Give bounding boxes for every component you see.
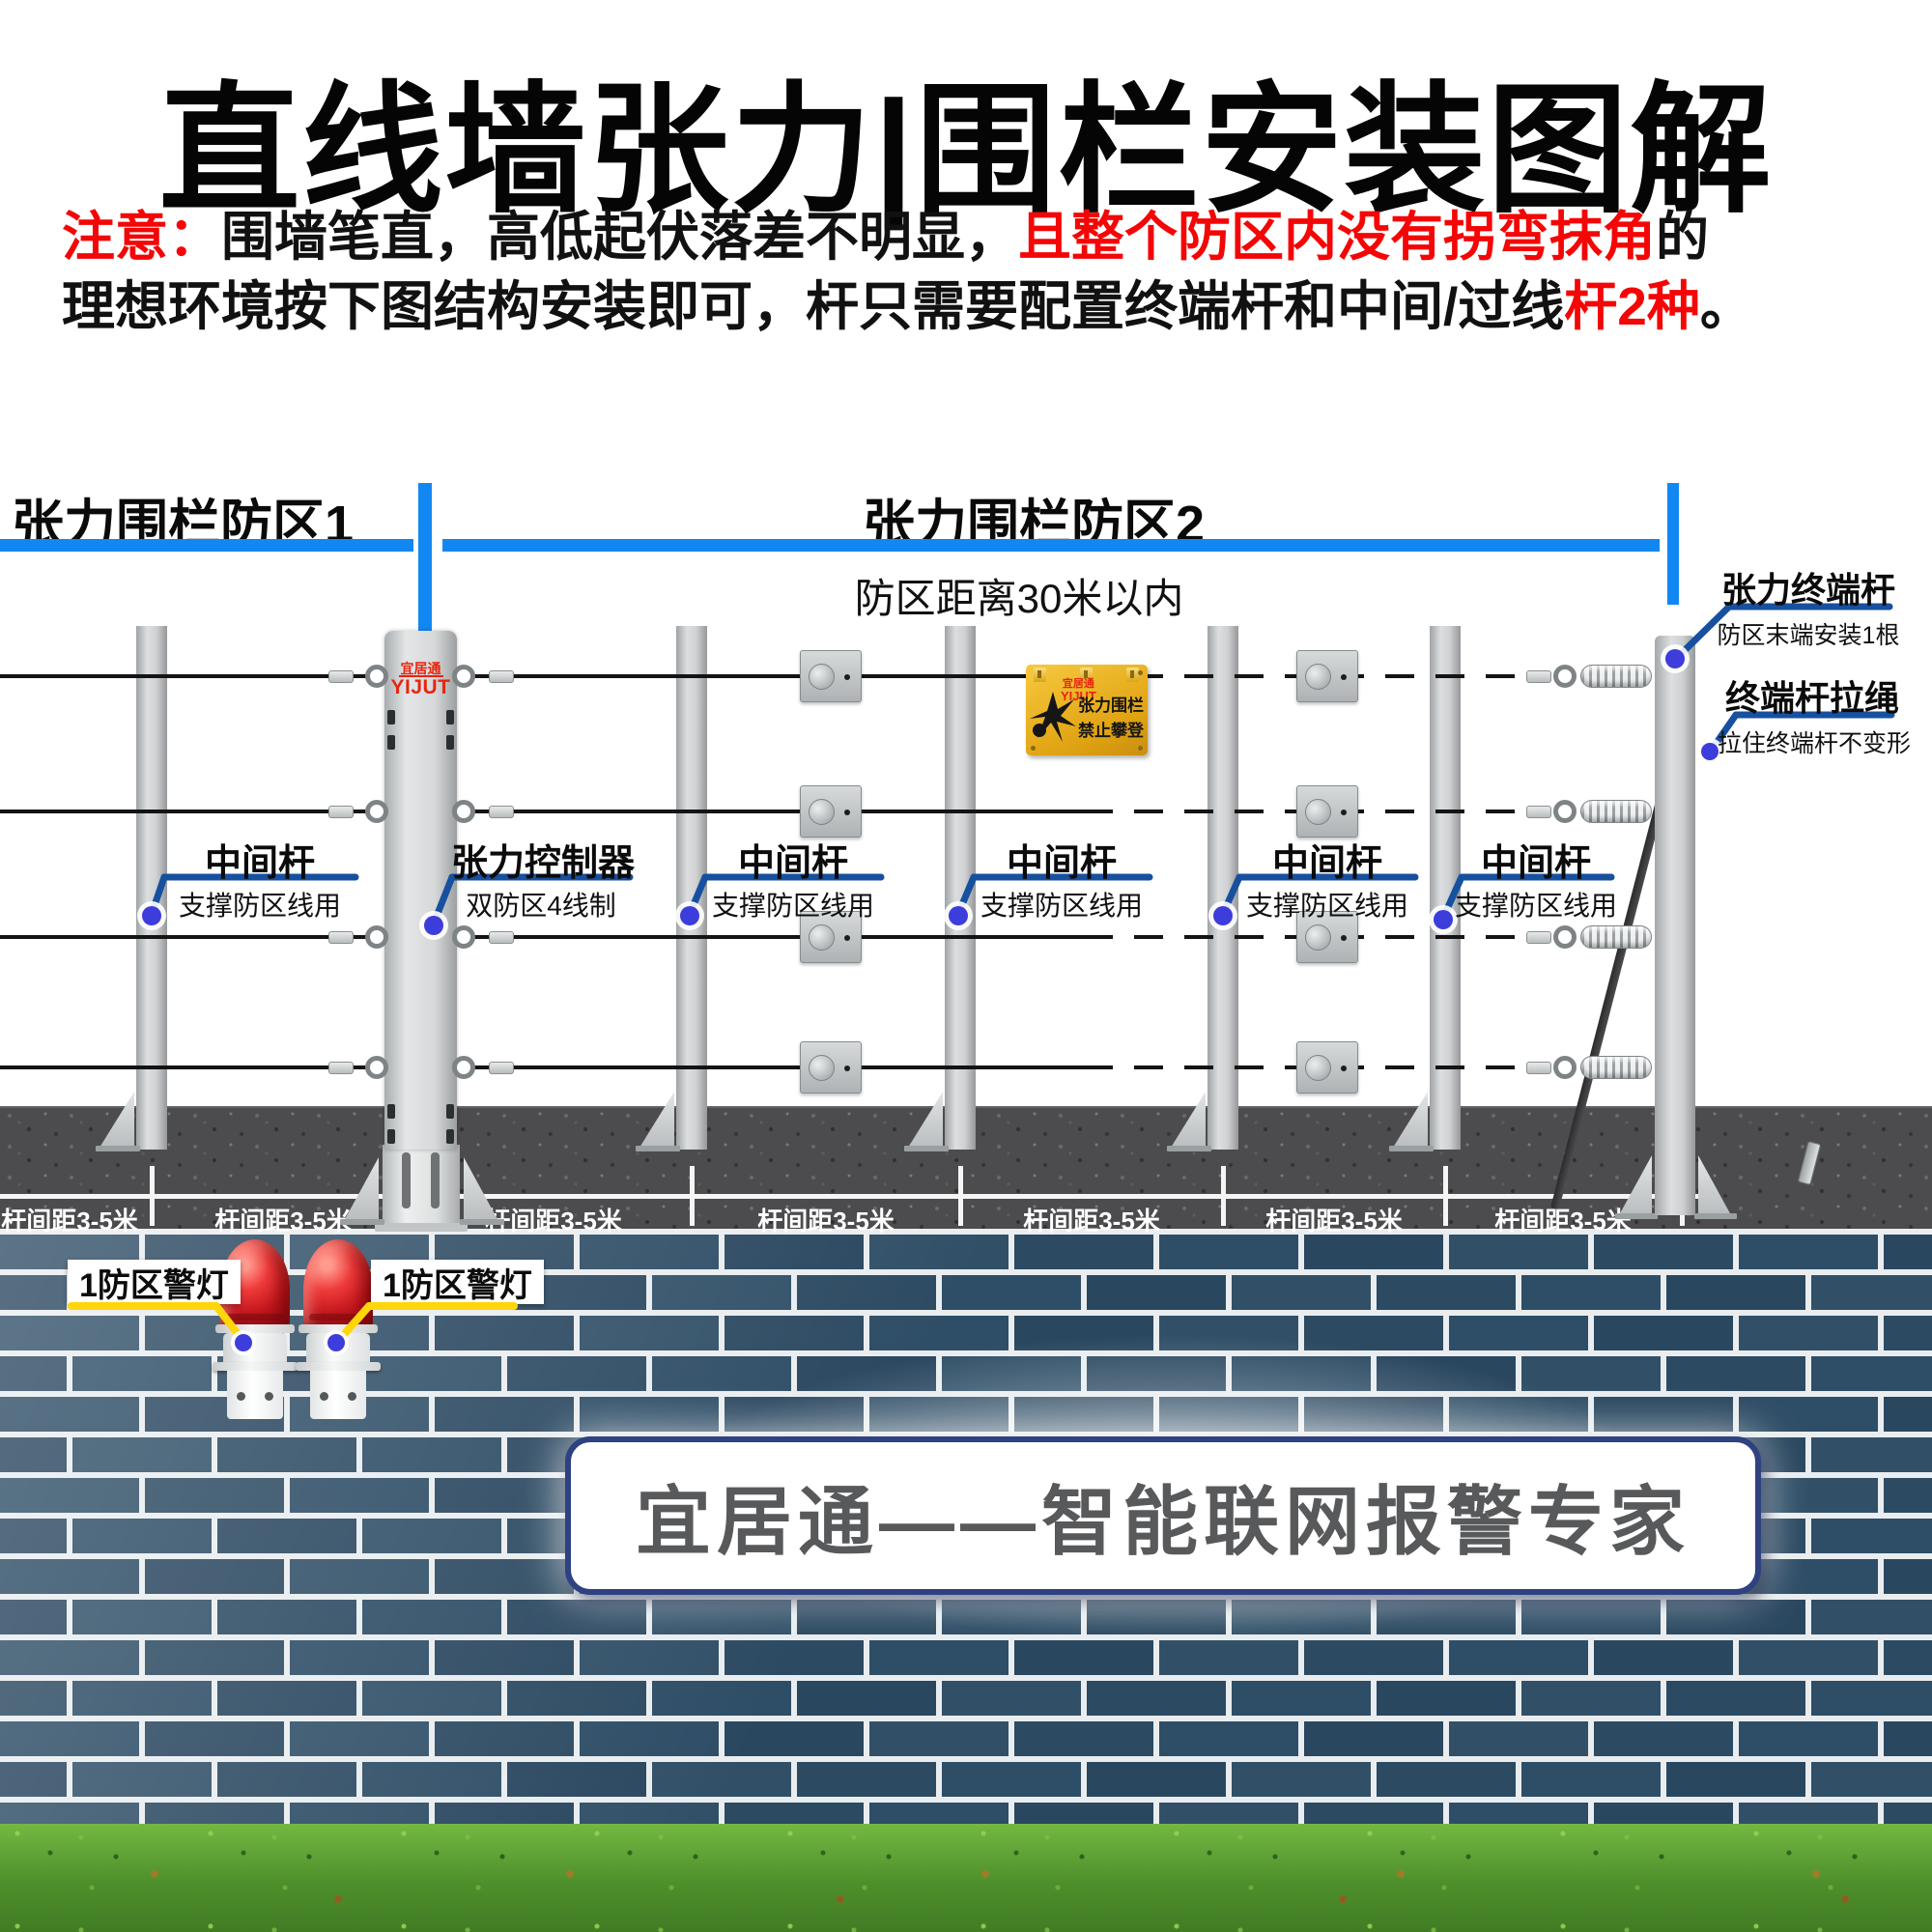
note-line-2: 理想环境按下图结构安装即可，杆只需要配置终端杆和中间/过线杆2种。	[62, 263, 1907, 340]
wire-ferrule	[328, 670, 354, 683]
callout-sub-controller: 双防区4线制	[466, 885, 616, 923]
middle-pole-1	[136, 626, 167, 1150]
wire-tension-plate	[800, 785, 862, 838]
infographic-page: 直线墙张力|围栏安装图解 注意：围墙笔直，高低起伏落差不明显，且整个防区内没有拐…	[0, 0, 1932, 1932]
measure-tick	[1443, 1166, 1448, 1226]
tension-spring	[1580, 800, 1652, 823]
wire-ferrule	[489, 806, 514, 818]
pole-anchor-plate	[96, 1146, 140, 1151]
callout-sub-middle-pole-3: 支撑防区线用	[980, 885, 1143, 923]
wire-ring	[365, 665, 388, 688]
warning-sign: 宜居通 YIJUT 张力围栏 禁止攀登	[1026, 665, 1148, 755]
wire-ferrule	[1526, 670, 1551, 683]
spring-hook-ring	[1553, 925, 1577, 949]
controller-logo-cn: 宜居通	[399, 662, 443, 677]
sign-text-line1: 张力围栏	[1076, 692, 1146, 716]
note-prefix: 注意：	[62, 207, 221, 267]
grass-strip	[0, 1824, 1932, 1932]
fence-wire-4-solid	[0, 1065, 1084, 1069]
spring-hook-ring	[1553, 1056, 1577, 1079]
pole-spacing-label: 杆间距3-5米	[485, 1202, 622, 1237]
pole-spacing-label: 杆间距3-5米	[757, 1202, 895, 1237]
tension-controller-pole: 宜居通 YIJUT	[384, 631, 457, 1150]
pole-anchor-plate	[1694, 1213, 1737, 1219]
callout-title-guy-rope: 终端杆拉绳	[1725, 670, 1899, 721]
pole-spacing-label: 杆间距3-5米	[214, 1202, 352, 1237]
middle-pole-4	[1207, 626, 1238, 1150]
brick-row	[0, 1756, 1932, 1797]
controller-bolt	[387, 1104, 395, 1119]
callout-sub-middle-pole-4: 支撑防区线用	[1246, 885, 1408, 923]
callout-sub-middle-pole-2: 支撑防区线用	[712, 885, 874, 923]
pole-spacing-label: 杆间距3-5米	[1265, 1202, 1403, 1237]
measure-tick	[1221, 1166, 1226, 1226]
note-l1-red: 且整个防区内没有拐弯抹角	[1018, 207, 1656, 267]
zone-2-bar	[442, 539, 1660, 552]
zone-divider-left	[418, 483, 432, 647]
wire-ferrule	[489, 670, 514, 683]
measure-tick	[958, 1166, 963, 1226]
zone-1-bar	[0, 539, 413, 552]
callout-title-middle-pole-4: 中间杆	[1272, 833, 1382, 886]
pole-anchor-plate	[904, 1146, 949, 1151]
wire-ferrule	[328, 1062, 354, 1074]
callout-sub-middle-pole-5: 支撑防区线用	[1455, 885, 1617, 923]
brick-row	[0, 1634, 1932, 1675]
wire-tension-plate	[1296, 1041, 1358, 1094]
brick-row	[0, 1594, 1932, 1634]
sign-hanger-tab	[1034, 668, 1046, 682]
callout-sub-terminal-pole: 防区末端安装1根	[1718, 616, 1900, 651]
controller-brand-logo: 宜居通 YIJUT	[384, 662, 457, 698]
wire-ring	[452, 665, 475, 688]
controller-bolt	[446, 735, 454, 750]
brick-row	[0, 1675, 1932, 1716]
spring-hook-ring	[1553, 665, 1577, 688]
wire-ring	[452, 800, 475, 823]
wire-tension-plate	[800, 1041, 862, 1094]
controller-logo-en: YIJUT	[390, 677, 450, 697]
wire-ring	[452, 925, 475, 949]
brick-row	[0, 1716, 1932, 1756]
callout-sub-middle-pole-1: 支撑防区线用	[179, 885, 341, 923]
pole-anchor-plate	[636, 1146, 680, 1151]
wire-ring	[452, 1056, 475, 1079]
pole-anchor-plate	[340, 1219, 384, 1225]
tension-spring	[1580, 925, 1652, 949]
wire-ferrule	[328, 806, 354, 818]
no-climbing-icon	[1028, 690, 1078, 744]
callout-title-middle-pole-2: 中间杆	[738, 833, 848, 886]
wire-tension-plate	[1296, 785, 1358, 838]
banner-text: 宜居通——智能联网报警专家	[636, 1462, 1690, 1570]
terminal-pole	[1655, 636, 1695, 1215]
callout-title-middle-pole-3: 中间杆	[1007, 833, 1117, 886]
spring-hook-ring	[1553, 800, 1577, 823]
middle-pole-2	[676, 626, 707, 1150]
callout-title-terminal-pole: 张力终端杆	[1721, 562, 1895, 612]
pole-anchor-plate	[1389, 1146, 1434, 1151]
controller-bolt	[387, 1129, 395, 1144]
callout-title-middle-pole-1: 中间杆	[205, 833, 315, 886]
fence-wire-1-solid	[0, 674, 1084, 678]
note-l2-black2: 。	[1700, 276, 1753, 336]
lamp-label-2: 1防区警灯	[371, 1260, 544, 1304]
middle-pole-3	[945, 626, 976, 1150]
wire-ring	[365, 925, 388, 949]
controller-bolt	[446, 710, 454, 724]
fence-wire-3-solid	[0, 935, 1084, 939]
wire-tension-plate	[800, 650, 862, 702]
callout-sub-guy-rope: 拉住终端杆不变形	[1718, 724, 1911, 759]
brick-row	[0, 1797, 1932, 1824]
controller-bolt	[387, 735, 395, 750]
wire-tension-plate	[1296, 650, 1358, 702]
measure-tick	[150, 1166, 155, 1226]
callout-title-controller: 张力控制器	[451, 833, 635, 886]
sign-hanger-tab	[1126, 668, 1139, 682]
controller-bolt	[387, 710, 395, 724]
brand-banner: 宜居通——智能联网报警专家	[565, 1436, 1761, 1595]
note-l2-black1: 理想环境按下图结构安装即可，杆只需要配置终端杆和中间/过线	[62, 276, 1564, 336]
pole-spacing-label: 杆间距3-5米	[1494, 1202, 1632, 1237]
wire-ring	[365, 1056, 388, 1079]
wire-ferrule	[1526, 1062, 1551, 1074]
wire-ferrule	[328, 931, 354, 944]
wire-ferrule	[1526, 931, 1551, 944]
pole-anchor-plate	[1615, 1213, 1658, 1219]
controller-bolt	[446, 1104, 454, 1119]
note-l2-red: 杆2种	[1564, 276, 1700, 336]
zone-distance-label: 防区距离30米以内	[855, 566, 1184, 625]
zone-divider-right	[1667, 483, 1679, 605]
tension-spring	[1580, 1056, 1652, 1079]
tension-spring	[1580, 665, 1652, 688]
note-line-1: 注意：围墙笔直，高低起伏落差不明显，且整个防区内没有拐弯抹角的	[62, 193, 1907, 270]
pole-anchor-plate	[1167, 1146, 1211, 1151]
callout-title-middle-pole-5: 中间杆	[1481, 833, 1591, 886]
lamp-label-1: 1防区警灯	[68, 1260, 241, 1304]
wire-ring	[365, 800, 388, 823]
sign-text-line2: 禁止攀登	[1076, 717, 1146, 741]
measure-tick	[690, 1166, 695, 1226]
pole-spacing-label: 杆间距3-5米	[1, 1202, 138, 1237]
wire-ferrule	[489, 1062, 514, 1074]
note-l1-black2: 的	[1656, 207, 1709, 267]
fence-wire-2-solid	[0, 810, 1084, 813]
pole-anchor-plate	[460, 1219, 504, 1225]
wire-ferrule	[1526, 806, 1551, 818]
controller-base-channel	[383, 1145, 460, 1228]
controller-bolt	[446, 1129, 454, 1144]
wire-ferrule	[489, 931, 514, 944]
pole-spacing-label: 杆间距3-5米	[1023, 1202, 1160, 1237]
controller-base-flange	[375, 1223, 468, 1232]
note-l1-black1: 围墙笔直，高低起伏落差不明显，	[221, 207, 1018, 267]
